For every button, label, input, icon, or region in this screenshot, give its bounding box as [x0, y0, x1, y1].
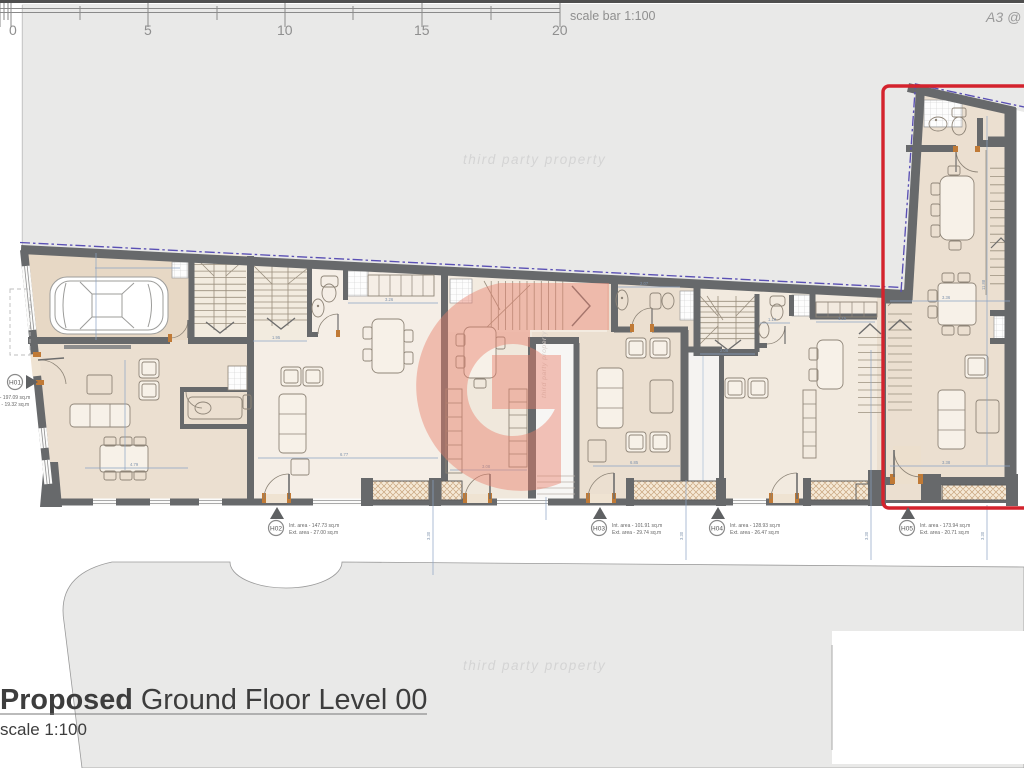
svg-text:2.06: 2.06 [720, 348, 729, 353]
svg-text:A3 @: A3 @ [985, 9, 1021, 25]
svg-text:5: 5 [144, 22, 152, 38]
svg-text:1.95: 1.95 [272, 335, 281, 340]
svg-text:Ext. area - 20.71 sq.m: Ext. area - 20.71 sq.m [920, 530, 969, 536]
svg-text:third party property: third party property [463, 658, 606, 673]
svg-text:H04: H04 [711, 526, 723, 533]
svg-text:Proposed Ground Floor Level 00: Proposed Ground Floor Level 00 [0, 684, 427, 716]
svg-text:20: 20 [552, 22, 568, 38]
svg-text:H05: H05 [901, 526, 913, 533]
svg-text:scale 1:100: scale 1:100 [0, 720, 87, 739]
svg-text:11.88: 11.88 [981, 279, 986, 290]
svg-text:Int. area - 147.73 sq.m: Int. area - 147.73 sq.m [289, 523, 339, 529]
svg-text:Ext. area - 27.00 sq.m: Ext. area - 27.00 sq.m [289, 530, 338, 536]
svg-text:15: 15 [414, 22, 430, 38]
svg-text:Ext. area - 19.32 sq.m: Ext. area - 19.32 sq.m [0, 402, 29, 408]
svg-text:3.30: 3.30 [426, 531, 431, 540]
svg-text:Int. area - 101.91 sq.m: Int. area - 101.91 sq.m [612, 523, 662, 529]
svg-text:H02: H02 [270, 526, 282, 533]
svg-text:3.30: 3.30 [679, 531, 684, 540]
svg-text:H03: H03 [593, 526, 605, 533]
svg-text:3.30: 3.30 [980, 531, 985, 540]
svg-text:Int. area - 173.94 sq.m: Int. area - 173.94 sq.m [920, 523, 970, 529]
svg-text:Int. area - 197.09 sq.m: Int. area - 197.09 sq.m [0, 395, 30, 401]
svg-text:3.26: 3.26 [385, 297, 394, 302]
svg-text:Ext. area - 29.74 sq.m: Ext. area - 29.74 sq.m [612, 530, 661, 536]
svg-text:H01: H01 [9, 380, 21, 387]
svg-text:2.07: 2.07 [640, 281, 649, 286]
svg-text:6.85: 6.85 [630, 460, 639, 465]
svg-text:3.36: 3.36 [942, 295, 951, 300]
svg-text:1.10: 1.10 [768, 317, 777, 322]
svg-text:0: 0 [9, 22, 17, 38]
svg-text:4.79: 4.79 [130, 462, 139, 467]
svg-text:Ext. area - 26.47 sq.m: Ext. area - 26.47 sq.m [730, 530, 779, 536]
svg-text:Int. area - 128.93 sq.m: Int. area - 128.93 sq.m [730, 523, 780, 529]
svg-text:third party property: third party property [463, 152, 606, 167]
svg-text:10: 10 [277, 22, 293, 38]
svg-text:3.38: 3.38 [942, 460, 951, 465]
svg-text:3.30: 3.30 [864, 531, 869, 540]
svg-text:6.77: 6.77 [340, 452, 349, 457]
svg-text:scale bar 1:100: scale bar 1:100 [570, 9, 656, 23]
svg-text:3.15: 3.15 [838, 316, 847, 321]
